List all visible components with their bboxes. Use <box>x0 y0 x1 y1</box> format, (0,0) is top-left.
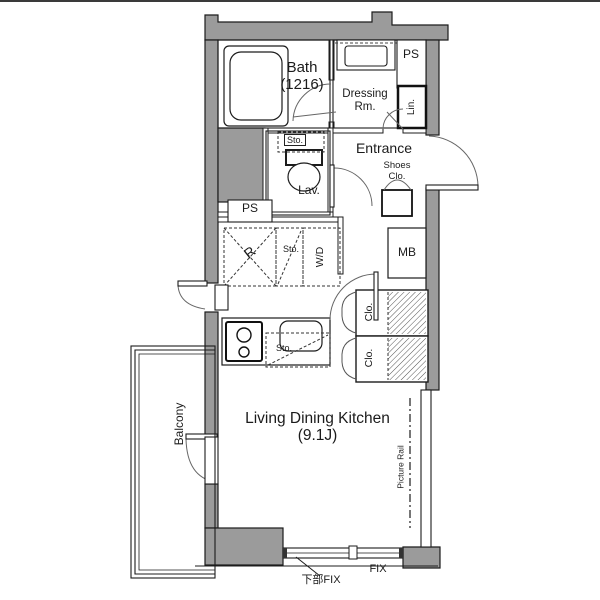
ps-top-label: PS <box>396 48 426 61</box>
picture-rail-label: Picture Rail <box>392 440 412 495</box>
ldk-label: Living Dining Kitchen (9.1J) <box>225 410 410 445</box>
sto-kitchen-label: Sto. <box>270 343 298 353</box>
closet-upper <box>342 290 428 336</box>
top-wall <box>205 12 448 40</box>
sto-mid-label: Sto. <box>278 244 304 254</box>
right-wall-upper <box>426 40 439 135</box>
linen-label: Lin. <box>399 94 425 120</box>
lower-fix-window-label: 下部FIX <box>290 574 352 586</box>
balcony-door-frame <box>205 437 218 484</box>
front-door-leaf <box>426 185 478 190</box>
ps-mid-label: PS <box>228 202 272 215</box>
toilet-side-block <box>218 128 265 202</box>
balcony-rail <box>131 346 215 578</box>
washer-dryer-label: W/D <box>304 240 338 274</box>
window-divider <box>349 546 357 559</box>
left-wall-upper <box>205 40 218 283</box>
left-window-frame <box>215 285 228 310</box>
fix-window-label: FIX <box>360 563 396 575</box>
bath-name: Bath <box>287 59 318 76</box>
balcony-label: Balcony <box>170 389 190 459</box>
sto-mid-box <box>276 228 303 286</box>
bottom-right-pier <box>403 547 440 568</box>
bottom-left-pier <box>205 528 283 565</box>
closet-upper-label: Clo. <box>357 295 383 329</box>
meter-box-label: MB <box>392 246 422 259</box>
closet-lower-label: Clo. <box>357 341 383 375</box>
closet-lower <box>342 336 428 382</box>
left-wall-lower <box>205 484 218 528</box>
right-wall-thin <box>421 390 431 547</box>
sto-toilet-label: Sto. <box>284 134 306 146</box>
entrance-label: Entrance <box>338 141 430 157</box>
lavatory-label: Lav. <box>286 184 332 197</box>
left-wall-mid <box>205 312 218 437</box>
dressing-label: Dressing Rm. <box>332 88 398 114</box>
shoes-closet-box <box>382 190 412 216</box>
floor-plan: Bath (1216) Dressing Rm. PS Lin. Sto. La… <box>0 0 600 600</box>
shoes-closet-label: Shoes Clo. <box>375 161 419 182</box>
bath-size: (1216) <box>280 76 323 93</box>
left-window-leaf <box>178 281 207 286</box>
